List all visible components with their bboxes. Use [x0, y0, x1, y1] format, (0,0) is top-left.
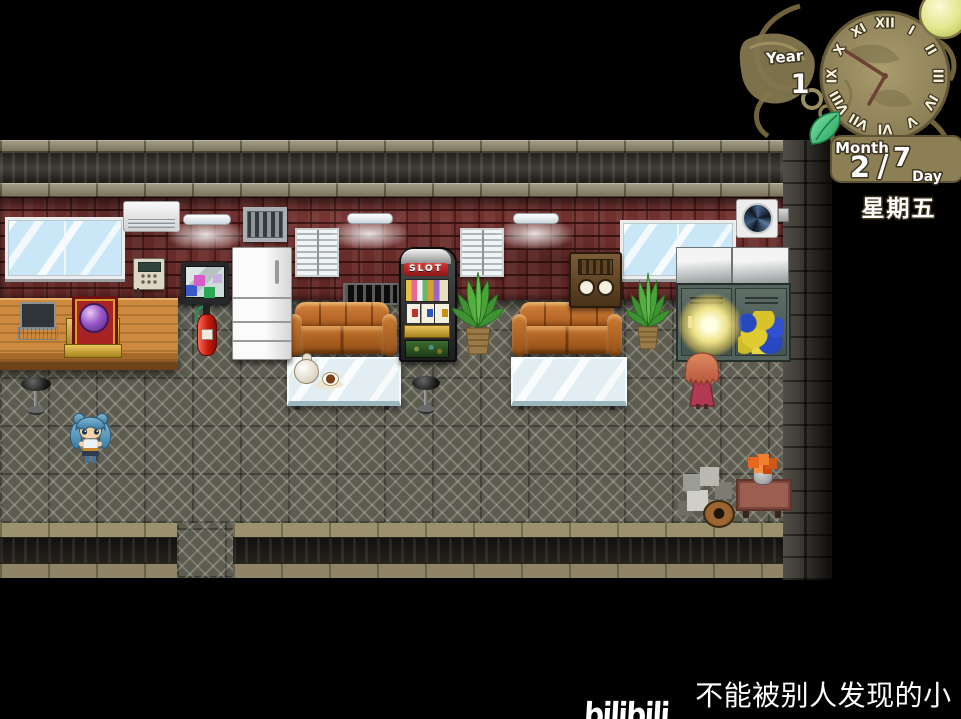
coffee-cup — [316, 371, 344, 391]
top-wall-cap — [0, 140, 783, 153]
boot — [92, 456, 97, 463]
refrigerator — [232, 247, 292, 360]
slot-button-panel — [404, 325, 450, 338]
belt — [83, 448, 98, 452]
stool-base — [417, 405, 435, 414]
glass-table-top — [511, 357, 627, 406]
cup — [322, 372, 339, 386]
antique-radio — [569, 252, 622, 308]
crystal-ball — [79, 303, 109, 333]
fire-extinguisher — [193, 303, 219, 357]
boot — [85, 456, 90, 463]
year-label: Year — [764, 46, 804, 67]
stool-seat — [21, 377, 51, 391]
extinguisher-label — [201, 329, 213, 340]
slot-marquee — [405, 340, 449, 358]
glass-table-right — [511, 357, 623, 413]
shrine-base — [64, 344, 122, 358]
junk-pot — [703, 500, 735, 528]
radio-dial — [597, 279, 614, 296]
bottom-wall-left — [0, 523, 177, 578]
butterfly-graphics — [191, 272, 192, 273]
foot — [704, 404, 708, 409]
eye — [94, 429, 99, 434]
watermark-text: 不能被别人发现的小号 — [695, 674, 961, 719]
junk-pile — [677, 466, 735, 526]
laptop-keyboard — [18, 327, 58, 340]
fridge-handle — [275, 260, 279, 284]
stool-pole — [424, 388, 428, 406]
slot-machine: SLOT — [399, 247, 457, 362]
hud-calendar-clock: XII I II III IV V VI VII VIII IX X XI Ye… — [718, 0, 961, 240]
tv-screen — [185, 266, 225, 298]
locker-top — [676, 247, 732, 287]
sofa-back — [295, 302, 389, 328]
phone-keypad — [140, 273, 158, 285]
lockers — [676, 247, 787, 358]
sofa-seat — [526, 326, 608, 354]
door-passage-floor — [177, 523, 233, 578]
svg-text:IX: IX — [826, 69, 841, 84]
year-value: 1 — [791, 69, 810, 100]
month-value: 2 — [850, 150, 870, 184]
top-wall-planks — [0, 153, 783, 183]
character-orange-hair — [682, 350, 722, 410]
top-wall-base — [0, 183, 783, 198]
stool-seat — [412, 376, 440, 390]
skirt — [82, 451, 99, 456]
potted-plant-1 — [452, 250, 504, 358]
svg-text:VI: VI — [878, 121, 893, 136]
sofa-seat — [301, 326, 383, 354]
laptop — [18, 302, 56, 342]
bilibili-logo: bilibili — [583, 695, 670, 719]
glow-orb — [678, 293, 742, 357]
hand — [97, 442, 102, 447]
slot-reels — [405, 302, 451, 325]
eye — [82, 429, 87, 434]
sofa-arm — [382, 314, 397, 356]
svg-text:III: III — [930, 69, 945, 84]
radio-speaker — [578, 259, 613, 275]
graffiti — [738, 311, 784, 354]
hand — [79, 442, 84, 447]
bottom-wall-right — [233, 523, 783, 578]
fluorescent-light-3 — [513, 213, 559, 224]
slot-arch — [401, 249, 451, 264]
radio-dial — [578, 279, 595, 296]
potted-plant-2 — [626, 255, 670, 358]
eye-glint — [97, 430, 99, 432]
junk-debris — [679, 468, 680, 469]
phone-screen — [138, 262, 161, 272]
wall-vent — [243, 207, 287, 242]
game-viewport[interactable]: SLOT — [0, 0, 961, 719]
day-value: 7 — [893, 143, 911, 173]
crystal-ball-shrine — [64, 296, 120, 360]
character-blue-hair — [67, 408, 114, 465]
fluorescent-light-2 — [347, 213, 393, 224]
stool-base — [27, 406, 45, 415]
window-left — [5, 217, 125, 279]
watermark: bilibili 不能被别人发现的小号 — [584, 674, 961, 719]
locker-door-right — [735, 288, 787, 356]
laptop-screen — [20, 302, 56, 330]
bar-stool-center — [412, 376, 440, 414]
tv — [181, 262, 229, 304]
sofa-arm — [607, 314, 622, 356]
date-separator: / — [878, 149, 889, 184]
bar-stool-left — [21, 377, 51, 415]
svg-text:XII: XII — [875, 17, 895, 32]
shaggy-hair — [685, 353, 719, 385]
flower-vase — [753, 467, 773, 485]
clock-center — [882, 73, 888, 79]
orange-flowers — [749, 459, 750, 460]
locker-vent — [745, 294, 778, 304]
sofa-right — [512, 302, 622, 360]
stool-pole — [34, 389, 38, 407]
wall-phone — [133, 258, 165, 290]
sofa-arm — [512, 314, 527, 356]
slot-reel-strip — [405, 279, 449, 302]
eye-glint — [85, 430, 87, 432]
slot-banner: SLOT — [404, 263, 448, 276]
robe — [690, 382, 714, 406]
weekday-text: 星期五 — [862, 196, 937, 222]
locker-top — [732, 247, 789, 287]
day-label: Day — [912, 169, 942, 185]
foot — [696, 404, 700, 409]
fluorescent-light-1 — [183, 214, 231, 225]
flower-table — [736, 455, 788, 522]
